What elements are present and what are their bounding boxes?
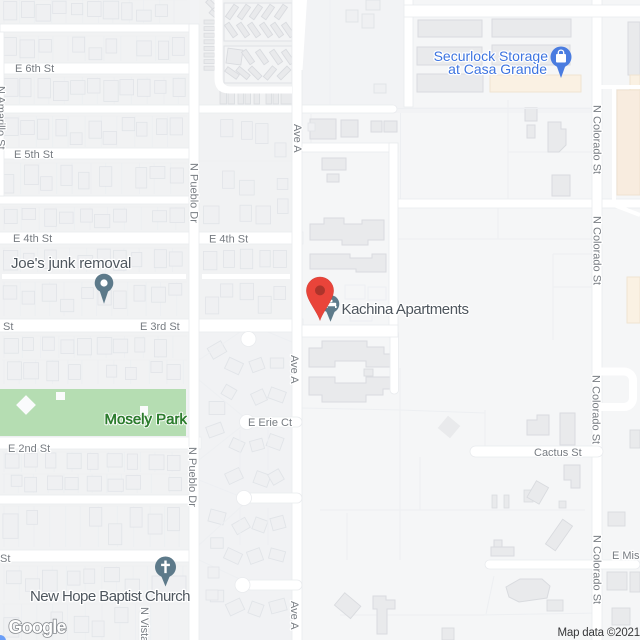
svg-text:N Colorado St: N Colorado St [590, 375, 602, 444]
svg-text:N Pueblo Dr: N Pueblo Dr [188, 163, 200, 223]
svg-text:E 4th St: E 4th St [13, 233, 52, 245]
svg-text:E Mis: E Mis [612, 550, 640, 562]
svg-text:Joe's junk removal: Joe's junk removal [11, 255, 131, 272]
svg-text:Map data ©2021: Map data ©2021 [558, 627, 640, 639]
svg-text:N Colorado St: N Colorado St [591, 105, 603, 174]
svg-text:N Pueblo Dr: N Pueblo Dr [186, 447, 198, 507]
svg-text:N Amarillo St: N Amarillo St [0, 86, 7, 150]
svg-text:Google: Google [9, 617, 67, 637]
svg-text:St: St [0, 553, 10, 565]
svg-text:Cactus St: Cactus St [534, 447, 582, 459]
svg-text:N Colorado St: N Colorado St [591, 535, 603, 604]
svg-text:Ave A: Ave A [288, 601, 300, 630]
svg-text:Kachina Apartments: Kachina Apartments [342, 301, 469, 318]
svg-text:New Hope Baptist Church: New Hope Baptist Church [30, 588, 190, 605]
svg-text:E 3rd St: E 3rd St [140, 321, 180, 333]
svg-text:Mosely Park: Mosely Park [105, 411, 188, 428]
svg-text:Ave A: Ave A [288, 355, 300, 384]
svg-text:E 5th St: E 5th St [14, 149, 53, 161]
svg-text:N Vista Grande: N Vista Grande [138, 607, 150, 640]
svg-text:E 6th St: E 6th St [15, 63, 54, 75]
svg-text:at Casa Grande: at Casa Grande [448, 61, 547, 77]
svg-text:E Erie Ct: E Erie Ct [248, 417, 292, 429]
svg-text:E 4th St: E 4th St [209, 234, 248, 246]
svg-text:Ave A: Ave A [291, 124, 303, 153]
svg-text:E 2nd St: E 2nd St [8, 443, 50, 455]
svg-text:St: St [3, 321, 13, 333]
svg-text:N Colorado St: N Colorado St [591, 216, 603, 285]
